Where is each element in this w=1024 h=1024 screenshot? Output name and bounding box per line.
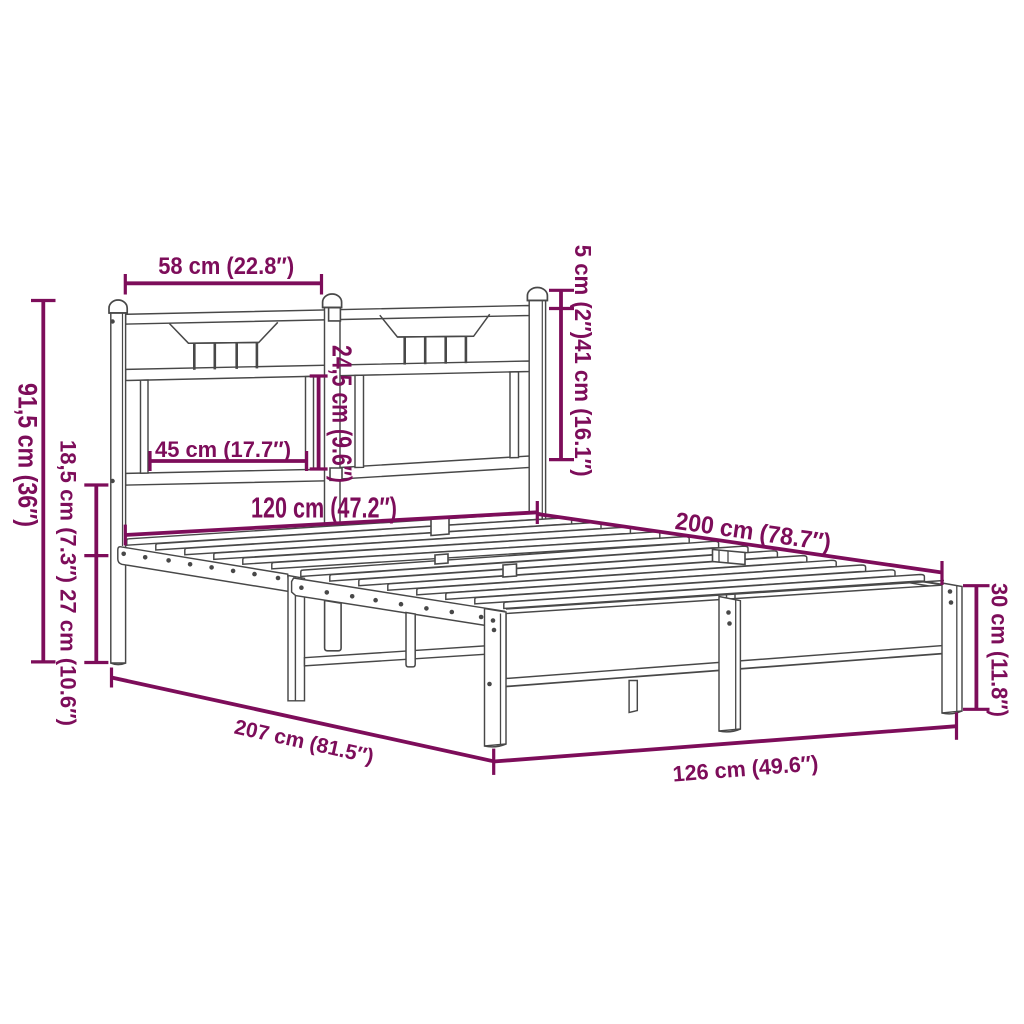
- svg-text:30 cm (11.8″): 30 cm (11.8″): [986, 583, 1012, 717]
- svg-text:120 cm (47.2″): 120 cm (47.2″): [251, 492, 397, 524]
- svg-text:5 cm (2″)41 cm (16.1″): 5 cm (2″)41 cm (16.1″): [570, 245, 596, 477]
- svg-text:45 cm (17.7″): 45 cm (17.7″): [155, 437, 291, 462]
- svg-text:24,5 cm (9.6″): 24,5 cm (9.6″): [327, 345, 358, 483]
- svg-text:58 cm (22.8″): 58 cm (22.8″): [158, 253, 294, 280]
- svg-text:91,5 cm (36″): 91,5 cm (36″): [13, 383, 43, 527]
- svg-text:18,5 cm (7.3″) 27 cm (10.6″): 18,5 cm (7.3″) 27 cm (10.6″): [55, 440, 80, 726]
